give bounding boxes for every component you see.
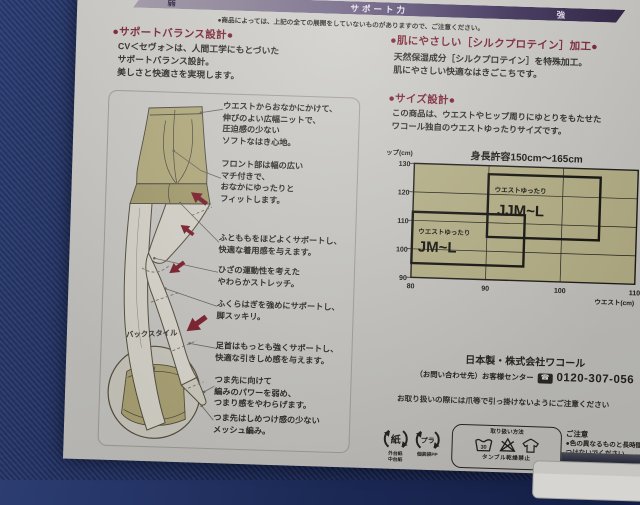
company-block: 日本製・株式会社ワコール （お問い合わせ先）お客様センター ☎ 0120-307… — [396, 349, 640, 387]
plastic-recycle-icon: プラ — [414, 427, 441, 454]
tights-diagram-panel: ウエストからおなかにかけて、 伸びのよい広幅ニットで、 圧迫感の少ない ソフトな… — [97, 90, 360, 454]
svg-text:110: 110 — [629, 290, 640, 297]
back-style-label: バックスタイル — [126, 327, 178, 340]
paper-recycle-mark: 紙 外台紙 中台紙 — [381, 425, 410, 464]
callout-toe-power: つま先に向けて 編みのパワーを弱め、 つまり感をやわらげます。 — [214, 374, 349, 413]
svg-text:100: 100 — [396, 246, 408, 253]
region-jjml-size: JJM~L — [497, 202, 545, 220]
paper-recycle-icon: 紙 — [382, 426, 409, 453]
callout-waist: ウエストからおなかにかけて、 伸びのよい広幅ニットで、 圧迫感の少ない ソフトな… — [222, 100, 357, 151]
phone-number: 0120-307-056 — [556, 372, 634, 386]
handling-note: お取り扱いの際には爪等で引っ掛けないようにご注意ください — [397, 393, 640, 414]
care-icons-row: 30 — [452, 435, 560, 454]
callout-calf: ふくらはぎを強めにサポートし、 脚スッキリ。 — [216, 298, 351, 325]
svg-text:90: 90 — [399, 275, 407, 282]
size-design-body: この商品は、ウエストやヒップ周りにゆとりをもたせた ワコール独自のウエストゆった… — [391, 107, 640, 141]
callout-knee: ひざの運動性を考えた やわらかストレッチ。 — [217, 264, 352, 291]
callout-ankle: 足首はもっとも強くサポートし、 快適な引きしめ感を与えます。 — [215, 340, 350, 367]
chart-xlabel: ウエスト(cm) — [594, 298, 634, 307]
size-design-heading: ●サイズ設計● — [388, 91, 455, 108]
plastic-recycle-mark: プラ 個装袋PP — [413, 426, 442, 459]
svg-text:130: 130 — [399, 161, 411, 168]
svg-text:30: 30 — [480, 445, 486, 451]
plastic-mark-caption: 個装袋PP — [413, 452, 441, 459]
paper-mark-caption: 外台紙 中台紙 — [381, 451, 409, 464]
svg-text:プラ: プラ — [421, 436, 435, 445]
wash-30-icon: 30 — [473, 435, 493, 452]
svg-text:紙: 紙 — [391, 433, 401, 446]
chart-ylabel: ヒップ(cm) — [382, 147, 413, 157]
chart-y-ticks: 130 120 110 100 90 — [395, 161, 411, 282]
bottom-right-partial-box — [532, 460, 640, 504]
svg-text:120: 120 — [398, 189, 410, 196]
size-chart: 身長許容150cm～165cm ヒップ(cm) ウエストゆったり JM~L ウエ… — [382, 144, 640, 312]
support-balance-body: CV＜セヴォ＞は、人間工学にもとづいた サポートバランス設計。 美しさと快適さを… — [117, 40, 368, 87]
svg-text:90: 90 — [481, 286, 489, 293]
svg-text:100: 100 — [554, 288, 566, 295]
no-bleach-icon — [498, 436, 516, 453]
callout-front: フロント部は幅の広い マチ付きで、 おなかにゆったりと フィットします。 — [220, 158, 355, 209]
package-sheet: 弱 サポート力 強 ●商品によっては、上記の全ての展開をしていないものがあります… — [63, 0, 640, 477]
callout-thigh: ふとももをほどよくサポートし、 快適な着用感を与えます。 — [218, 232, 353, 259]
svg-text:80: 80 — [407, 283, 415, 290]
silk-body: 天然保湿成分［シルクプロテイン］を特殊加工。 肌にやさしい快適なはきごこちです。 — [393, 51, 640, 86]
contact-prefix: （お問い合わせ先）お客様センター — [415, 369, 533, 382]
chart-x-ticks: 80 90 100 110 — [407, 283, 640, 297]
svg-text:110: 110 — [397, 218, 409, 225]
region-jml-size: JM~L — [418, 239, 457, 257]
chart-title: 身長許容150cm～165cm — [470, 149, 583, 166]
support-strong-label: 強 — [556, 9, 565, 21]
tights-panty — [130, 104, 213, 205]
garment-dry-icon — [521, 437, 539, 454]
freedial-icon: ☎ — [538, 373, 553, 383]
callout-toe-mesh: つま先はしめつけ感の少ない メッシュ編み。 — [213, 412, 348, 439]
photo-of-package: { "support_bar": {"weak": "弱", "label": … — [0, 0, 640, 480]
